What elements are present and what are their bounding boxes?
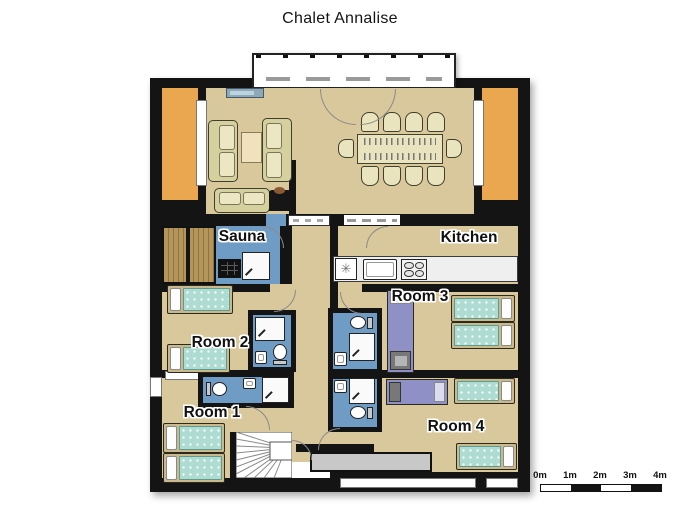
scale-bar-segments (540, 484, 662, 492)
balcony-railing (256, 55, 452, 58)
sofa-left (208, 120, 238, 182)
burner-icon (415, 270, 425, 277)
room3-bed-1 (451, 295, 515, 322)
room1-shower-icon (262, 377, 289, 403)
room1-sink-icon (243, 378, 256, 389)
label-room3: Room 3 (380, 288, 460, 306)
pillow (503, 446, 514, 467)
sauna-bench-divider (186, 228, 190, 282)
sofa-cushion (219, 192, 241, 205)
room1-bed-2 (163, 453, 225, 483)
window-bottom-1 (340, 478, 476, 488)
room3-sink-icon (334, 352, 347, 366)
sauna-heater-icon (218, 259, 241, 278)
sink-basin-icon (366, 262, 394, 277)
wall-under-terrace-right (474, 200, 518, 214)
pillow (166, 456, 177, 480)
wood-stove-icon (269, 190, 291, 211)
room1-toilet-icon (212, 382, 227, 396)
room1-toilet-tank (206, 382, 211, 396)
dining-chair (361, 166, 379, 186)
hallway-floor (292, 226, 330, 462)
sideboard-icon (226, 88, 264, 98)
floor-plan-canvas: Chalet Annalise ✳ (0, 0, 680, 510)
kitchen-glazing (344, 215, 400, 225)
scale-label-4: 4m (653, 470, 667, 481)
room1-bed-1 (163, 423, 225, 453)
dining-chair (383, 166, 401, 186)
kitchen-sink-icon (363, 259, 397, 280)
dining-chair (427, 166, 445, 186)
drain-icon (352, 349, 359, 356)
room3-toilet-tank (367, 317, 373, 329)
room2-sink-icon (255, 351, 267, 364)
scale-label-3: 3m (623, 470, 637, 481)
sink-basin-icon (258, 354, 264, 361)
window-room1-left-wall (150, 377, 162, 397)
dining-chair (338, 139, 354, 158)
scale-label-2: 2m (593, 470, 607, 481)
coffee-table (241, 132, 262, 163)
dining-chair (405, 166, 423, 186)
mattress (183, 288, 230, 311)
storage-unit (310, 452, 432, 472)
fridge-icon: ✳ (335, 258, 357, 280)
room2-toilet-tank (273, 360, 287, 365)
dining-chair (427, 112, 445, 132)
sink-basin-icon (246, 381, 253, 386)
room4-sink-icon (334, 380, 347, 393)
window-right (473, 100, 484, 186)
scale-bar: 0m 1m 2m 3m 4m (534, 470, 668, 496)
room3-door-gap (338, 284, 362, 292)
dining-chair (446, 139, 462, 158)
burner-icon (404, 270, 414, 277)
drain-icon (265, 391, 272, 398)
label-room2: Room 2 (180, 334, 260, 352)
window-bottom-2 (486, 478, 518, 488)
room2-toilet-icon (273, 344, 287, 360)
terrace-right (482, 88, 518, 200)
wall-under-terrace-left (162, 200, 206, 214)
scale-segment (541, 485, 571, 491)
room4-shower-icon (349, 378, 375, 404)
page-title: Chalet Annalise (0, 10, 680, 28)
room3-toilet-icon (350, 316, 366, 329)
mattress (454, 298, 499, 319)
dining-table (357, 134, 443, 164)
sliding-doors (266, 77, 442, 81)
dining-chair (405, 112, 423, 132)
sofa-cushion (219, 152, 235, 177)
pillow (501, 298, 512, 319)
stove-flue-icon (274, 187, 285, 194)
glazing-dashes-icon (347, 219, 397, 222)
sofa-cushion (266, 152, 282, 178)
room4-toilet-tank (367, 407, 373, 419)
burner-icon (404, 262, 414, 269)
terrace-left (162, 88, 198, 200)
label-kitchen: Kitchen (424, 229, 514, 247)
drain-icon (245, 268, 252, 275)
bunk-ladder-end (389, 382, 401, 402)
bunk-ladder-step (395, 356, 407, 366)
label-room4: Room 4 (416, 418, 496, 436)
scale-label-1: 1m (563, 470, 577, 481)
pillow (170, 288, 181, 311)
scale-segment (571, 485, 601, 491)
mattress (179, 426, 222, 450)
sofa-right (262, 118, 292, 182)
pillow (501, 325, 512, 346)
closet-shelf-icon (293, 219, 325, 222)
sofa-cushion (243, 192, 265, 205)
heater-grid-icon (221, 262, 238, 275)
hall-closet (288, 215, 330, 226)
burner-icon (415, 262, 425, 269)
place-settings-icon (364, 153, 436, 160)
sauna-shower-icon (242, 252, 270, 280)
sauna-door-gap (266, 214, 286, 226)
pillow (166, 426, 177, 450)
sofa-bottom (214, 188, 270, 213)
pillow (501, 381, 512, 401)
hob-icon (401, 259, 427, 280)
scale-label-0: 0m (533, 470, 547, 481)
staircase (236, 432, 292, 478)
scale-segment (601, 485, 631, 491)
drain-icon (352, 392, 359, 399)
sink-basin-icon (337, 355, 344, 363)
room4-bed-2 (456, 443, 517, 470)
label-sauna: Sauna (204, 228, 280, 246)
balcony (252, 53, 456, 89)
room4-bunk-bed (386, 379, 448, 405)
sofa-cushion (219, 125, 235, 150)
room3-shower-icon (349, 333, 375, 361)
bunk-pillow (434, 382, 445, 402)
sofa-cushion (266, 123, 282, 149)
room4-toilet-icon (350, 406, 366, 419)
label-room1: Room 1 (172, 404, 252, 422)
mattress (454, 325, 499, 346)
sideboard-top (230, 91, 254, 95)
mattress (179, 456, 222, 480)
mattress (459, 446, 501, 467)
place-settings-icon (364, 138, 436, 145)
room3-bed-2 (451, 322, 515, 349)
room2-bed-1 (167, 285, 233, 314)
dining-chair (383, 112, 401, 132)
room4-bed-1 (454, 378, 515, 404)
sink-basin-icon (337, 383, 344, 390)
mattress (457, 381, 499, 401)
scale-segment (631, 485, 661, 491)
fridge-symbol: ✳ (341, 261, 352, 277)
window-left (196, 100, 207, 186)
